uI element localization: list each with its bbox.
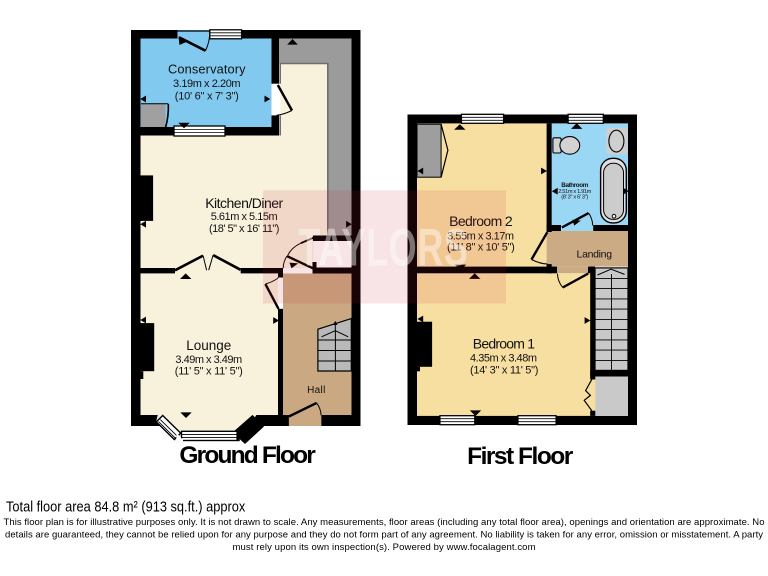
svg-text:Bathroom: Bathroom (561, 182, 588, 189)
svg-text:(8' 3" x 6' 3"): (8' 3" x 6' 3") (561, 195, 588, 201)
svg-text:Hall: Hall (307, 385, 325, 396)
svg-text:must rely upon its own inspect: must rely upon its own inspection(s). Po… (233, 542, 536, 553)
svg-text:3.49m x 3.49m: 3.49m x 3.49m (175, 354, 242, 366)
svg-text:(14' 3" x 11' 5"): (14' 3" x 11' 5") (470, 364, 538, 376)
svg-text:First Floor: First Floor (467, 443, 574, 470)
svg-text:(10' 6" x 7' 3"): (10' 6" x 7' 3") (175, 90, 239, 102)
svg-text:Landing: Landing (577, 248, 613, 260)
svg-text:(11' 5" x 11' 5"): (11' 5" x 11' 5") (175, 366, 243, 378)
svg-text:Lounge: Lounge (186, 338, 231, 353)
svg-text:TAYLORS: TAYLORS (299, 219, 469, 278)
svg-text:details are guaranteed, they c: details are guaranteed, they cannot be r… (5, 529, 763, 540)
svg-text:Bedroom 1: Bedroom 1 (473, 336, 535, 352)
svg-text:3.19m x 2.20m: 3.19m x 2.20m (173, 78, 240, 90)
svg-text:This floor plan is for illustr: This floor plan is for illustrative purp… (4, 517, 765, 528)
svg-text:4.35m x 3.48m: 4.35m x 3.48m (470, 353, 537, 365)
svg-text:Total floor area 84.8 m² (913: Total floor area 84.8 m² (913 sq.ft.) ap… (6, 499, 246, 516)
svg-text:Ground Floor: Ground Floor (179, 442, 316, 469)
svg-text:Conservatory: Conservatory (168, 62, 246, 77)
